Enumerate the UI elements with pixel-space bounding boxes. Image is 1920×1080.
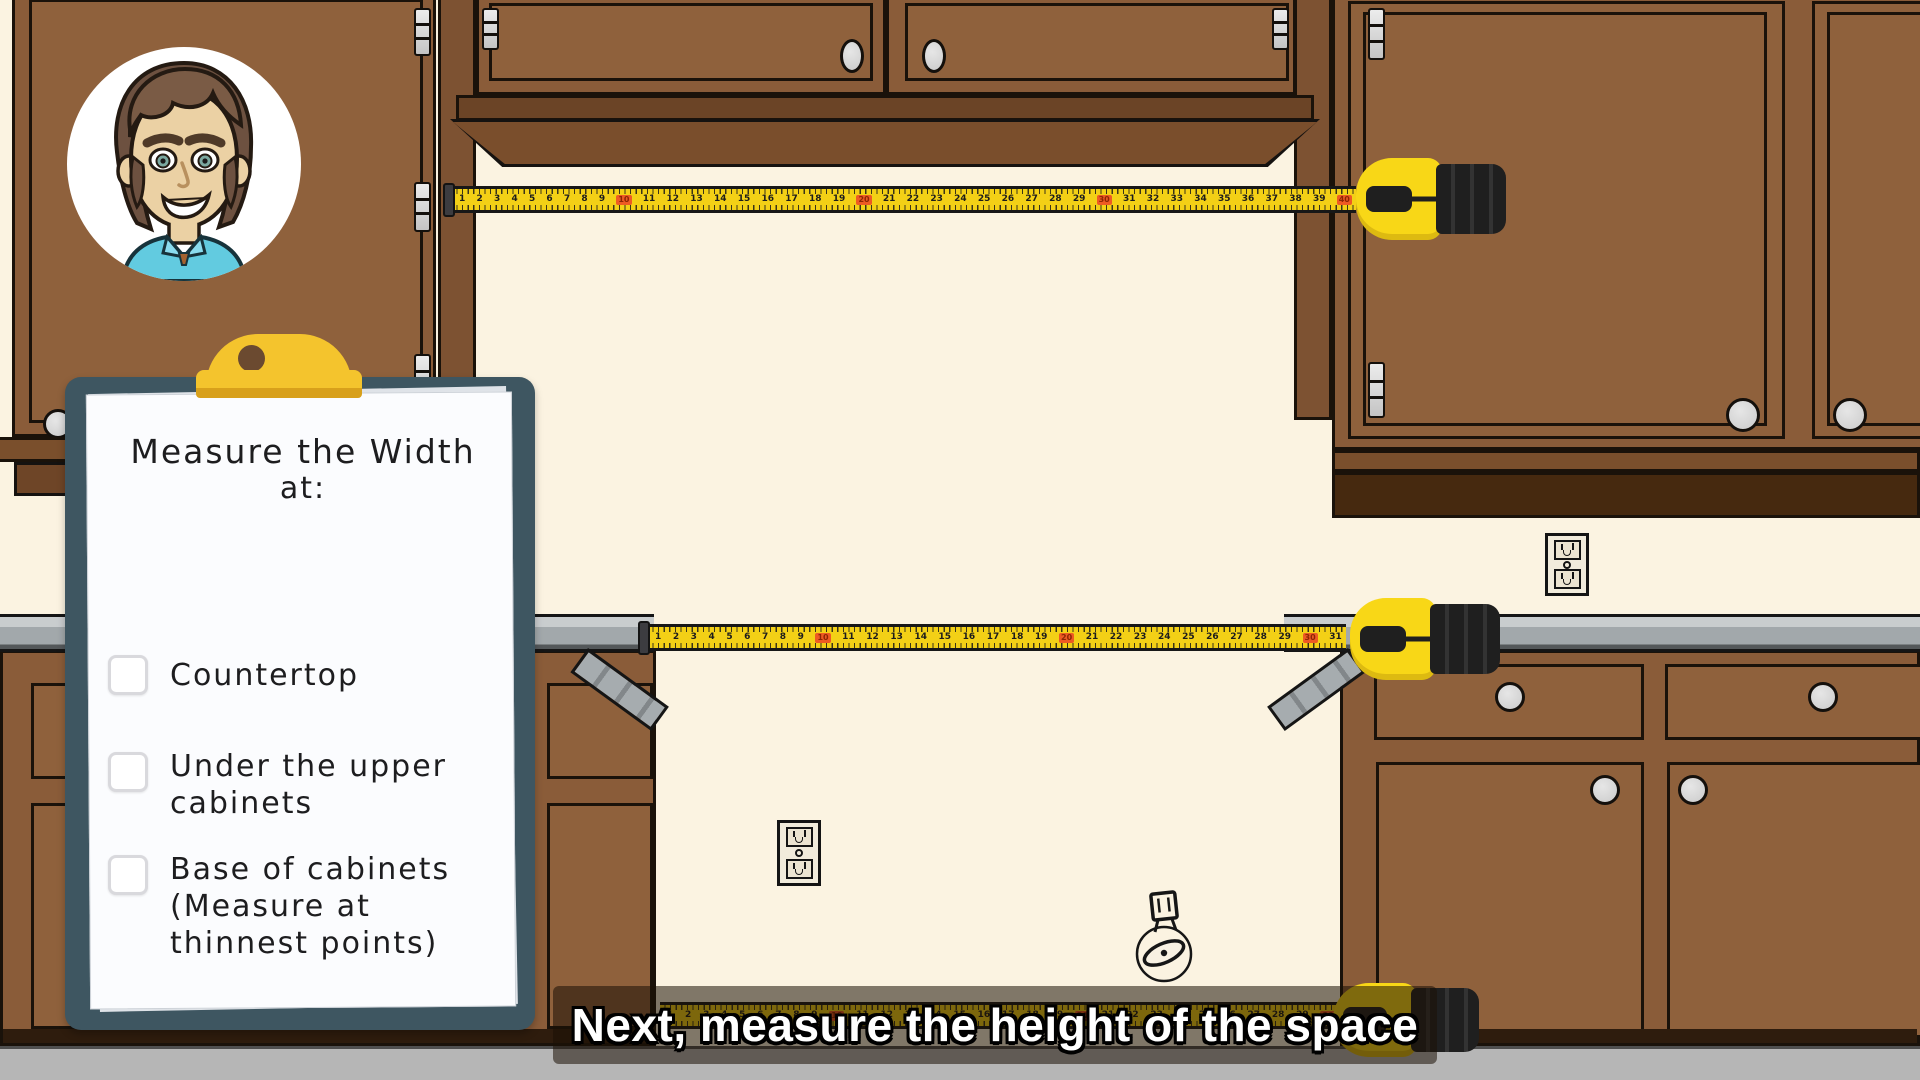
upper-right-right-knob — [1833, 398, 1867, 432]
clipboard-title: Measure the Width at: — [92, 432, 514, 506]
tape-blade-top: 1234567891011121314151617181920212223242… — [452, 186, 1356, 213]
clipboard-clip-hole — [238, 345, 265, 372]
hinge-icon — [1368, 362, 1385, 418]
checkbox — [108, 855, 148, 895]
checkbox — [108, 752, 148, 792]
tape-hook-top — [443, 183, 455, 217]
clipboard-title-line1: Measure the Width — [92, 432, 514, 471]
checklist-label: cabinets — [170, 785, 447, 822]
lower-right-drawer-2-knob — [1808, 682, 1838, 712]
lower-right-drawer-1-knob — [1495, 682, 1525, 712]
tape-hook-middle — [638, 621, 650, 655]
middle-upper-left-knob — [840, 39, 864, 73]
middle-upper-cabinet-left-door — [476, 0, 886, 95]
checklist-label: thinnest points) — [170, 925, 450, 962]
tape-measure-body-middle — [1350, 598, 1500, 680]
checkbox — [108, 655, 148, 695]
presenter-avatar — [67, 47, 301, 281]
tape-measure-body-top — [1356, 158, 1506, 240]
outlet-receptacle — [1554, 569, 1581, 589]
hinge-icon — [1368, 8, 1385, 60]
middle-upper-cabinet-right-door — [886, 0, 1296, 95]
middle-upper-right-door-panel — [905, 3, 1289, 81]
subtitle-text: Next, measure the height of the space — [572, 998, 1419, 1052]
outlet-receptacle — [1554, 540, 1581, 560]
gas-valve-icon — [1128, 890, 1200, 986]
hinge-icon — [414, 182, 431, 232]
hinge-icon — [482, 8, 499, 50]
lower-right-drawer-2 — [1665, 664, 1920, 740]
middle-upper-left-door-panel — [489, 3, 873, 81]
middle-upper-cabinet-valance — [450, 119, 1320, 167]
middle-upper-cabinet-rail — [456, 95, 1314, 121]
hinge-icon — [414, 8, 431, 56]
tape-blade-middle: 1234567891011121314151617181920212223242… — [648, 624, 1346, 651]
avatar-face-icon — [67, 47, 301, 281]
middle-upper-right-knob — [922, 39, 946, 73]
lower-right-door-1-knob — [1590, 775, 1620, 805]
outlet-receptacle — [786, 827, 813, 847]
upper-right-cabinet-band — [1332, 472, 1920, 518]
outlet-screw — [795, 849, 803, 857]
lower-right-door-2 — [1667, 762, 1920, 1038]
checklist-label: Base of cabinets — [170, 851, 450, 888]
checklist-label: Under the upper — [170, 748, 447, 785]
clipboard-clip-tab — [196, 370, 362, 398]
hinge-icon — [1272, 8, 1289, 50]
lower-right-door-2-knob — [1678, 775, 1708, 805]
clipboard-title-line2: at: — [92, 471, 514, 506]
kitchen-illustration-scene: 1234567891011121314151617181920212223242… — [0, 0, 1920, 1080]
subtitle-bar: Next, measure the height of the space — [553, 986, 1437, 1064]
checklist-label: (Measure at — [170, 888, 450, 925]
checklist-label: Countertop — [170, 657, 359, 694]
outlet-screw — [1563, 561, 1571, 569]
upper-right-right-door-inner — [1827, 12, 1920, 426]
upper-right-cabinet-rail — [1332, 450, 1920, 472]
upper-right-right-door — [1812, 1, 1920, 439]
upper-right-left-knob — [1726, 398, 1760, 432]
outlet-receptacle — [786, 859, 813, 879]
power-outlet-icon — [1545, 533, 1589, 596]
power-outlet-icon — [777, 820, 821, 886]
